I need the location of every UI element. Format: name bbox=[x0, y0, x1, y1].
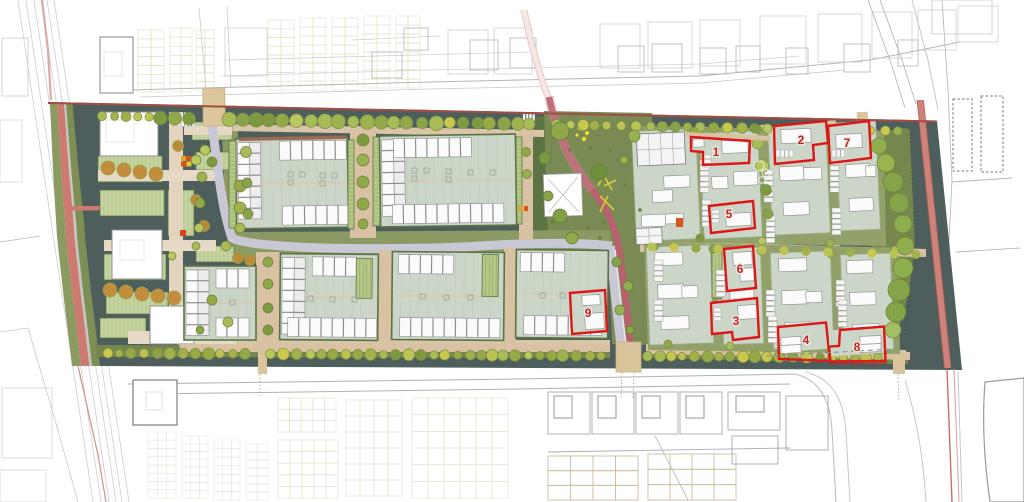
svg-text:5: 5 bbox=[726, 207, 733, 221]
svg-text:9: 9 bbox=[585, 306, 592, 320]
svg-text:2: 2 bbox=[798, 133, 805, 147]
svg-text:8: 8 bbox=[854, 340, 861, 354]
svg-text:6: 6 bbox=[737, 262, 744, 276]
svg-text:4: 4 bbox=[803, 333, 810, 347]
svg-text:7: 7 bbox=[844, 136, 851, 150]
svg-text:1: 1 bbox=[713, 145, 720, 159]
svg-text:3: 3 bbox=[733, 314, 740, 328]
